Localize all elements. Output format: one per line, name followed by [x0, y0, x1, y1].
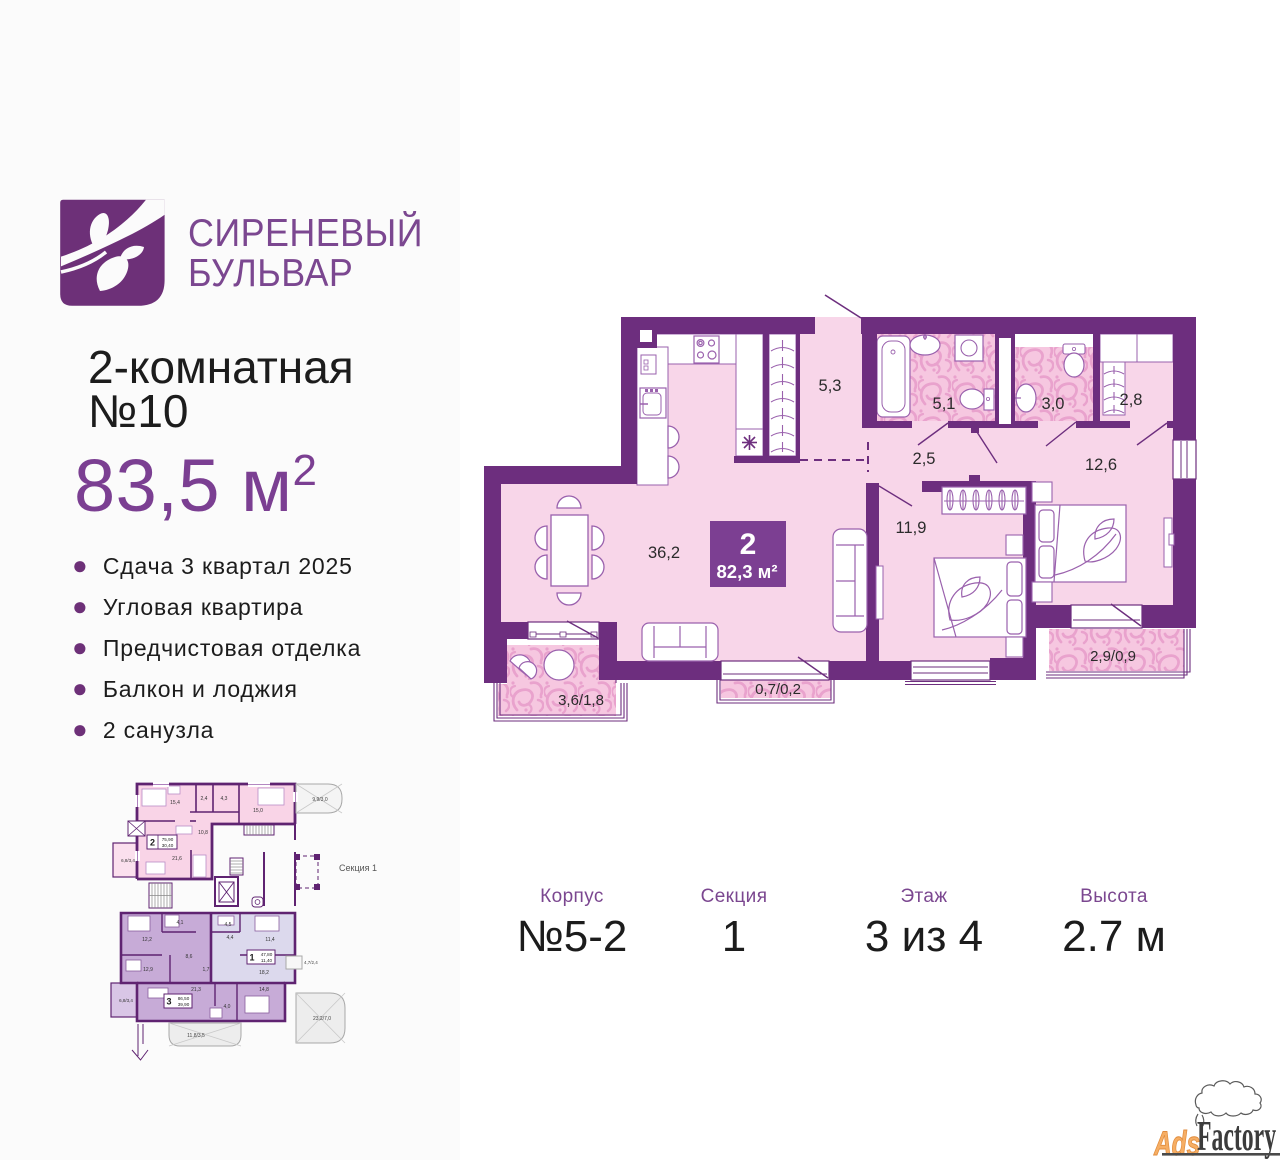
- svg-text:39,90: 39,90: [178, 1002, 190, 1007]
- svg-text:30,40: 30,40: [162, 843, 174, 848]
- svg-text:11,9: 11,9: [896, 519, 927, 537]
- svg-text:2: 2: [740, 528, 757, 561]
- svg-text:2,9/0,9: 2,9/0,9: [1090, 648, 1136, 665]
- svg-text:Секция 1: Секция 1: [339, 863, 377, 873]
- svg-text:6,8/3,4: 6,8/3,4: [121, 858, 135, 863]
- svg-text:15,0: 15,0: [253, 808, 263, 814]
- svg-text:82,3 м²: 82,3 м²: [717, 561, 778, 582]
- svg-text:18,2: 18,2: [259, 970, 269, 976]
- svg-text:11,4: 11,4: [265, 937, 275, 943]
- svg-text:4,3: 4,3: [221, 796, 228, 802]
- svg-text:3,6/1,8: 3,6/1,8: [558, 692, 604, 709]
- svg-text:2,8: 2,8: [1120, 391, 1143, 409]
- svg-text:1: 1: [249, 953, 254, 963]
- svg-text:4,5: 4,5: [225, 922, 232, 928]
- svg-text:14,8: 14,8: [259, 987, 269, 993]
- svg-text:23,2/7,0: 23,2/7,0: [313, 1016, 331, 1022]
- svg-text:75,90: 75,90: [162, 837, 174, 842]
- svg-text:4,1: 4,1: [177, 920, 184, 926]
- svg-text:12,9: 12,9: [143, 967, 153, 973]
- svg-text:86,50: 86,50: [178, 996, 190, 1001]
- svg-text:2,4: 2,4: [201, 796, 208, 802]
- svg-text:47,80: 47,80: [261, 952, 273, 957]
- svg-text:2,5: 2,5: [913, 450, 936, 468]
- svg-text:11,40: 11,40: [261, 958, 273, 963]
- svg-text:15,4: 15,4: [170, 800, 180, 806]
- svg-text:4,4: 4,4: [227, 935, 234, 941]
- svg-text:21,6: 21,6: [172, 856, 182, 862]
- svg-text:3,0: 3,0: [1042, 395, 1065, 413]
- svg-text:12,6: 12,6: [1085, 456, 1117, 474]
- svg-text:4,0: 4,0: [224, 1004, 231, 1010]
- svg-text:3: 3: [166, 997, 171, 1007]
- svg-text:8,6: 8,6: [186, 954, 193, 960]
- svg-text:21,3: 21,3: [191, 987, 201, 993]
- svg-text:11,8/3,5: 11,8/3,5: [187, 1033, 205, 1039]
- svg-text:5,1: 5,1: [933, 395, 956, 413]
- svg-text:4,7/2,4: 4,7/2,4: [304, 960, 318, 965]
- svg-text:2: 2: [150, 838, 155, 848]
- svg-text:10,8: 10,8: [198, 830, 208, 836]
- svg-text:5,3: 5,3: [819, 377, 842, 395]
- svg-text:0,7/0,2: 0,7/0,2: [755, 681, 801, 698]
- svg-text:12,2: 12,2: [142, 937, 152, 943]
- svg-text:9,9/3,0: 9,9/3,0: [312, 797, 328, 803]
- svg-text:1,7: 1,7: [203, 967, 210, 973]
- svg-text:6,8/3,4: 6,8/3,4: [119, 998, 133, 1003]
- svg-text:36,2: 36,2: [648, 544, 680, 562]
